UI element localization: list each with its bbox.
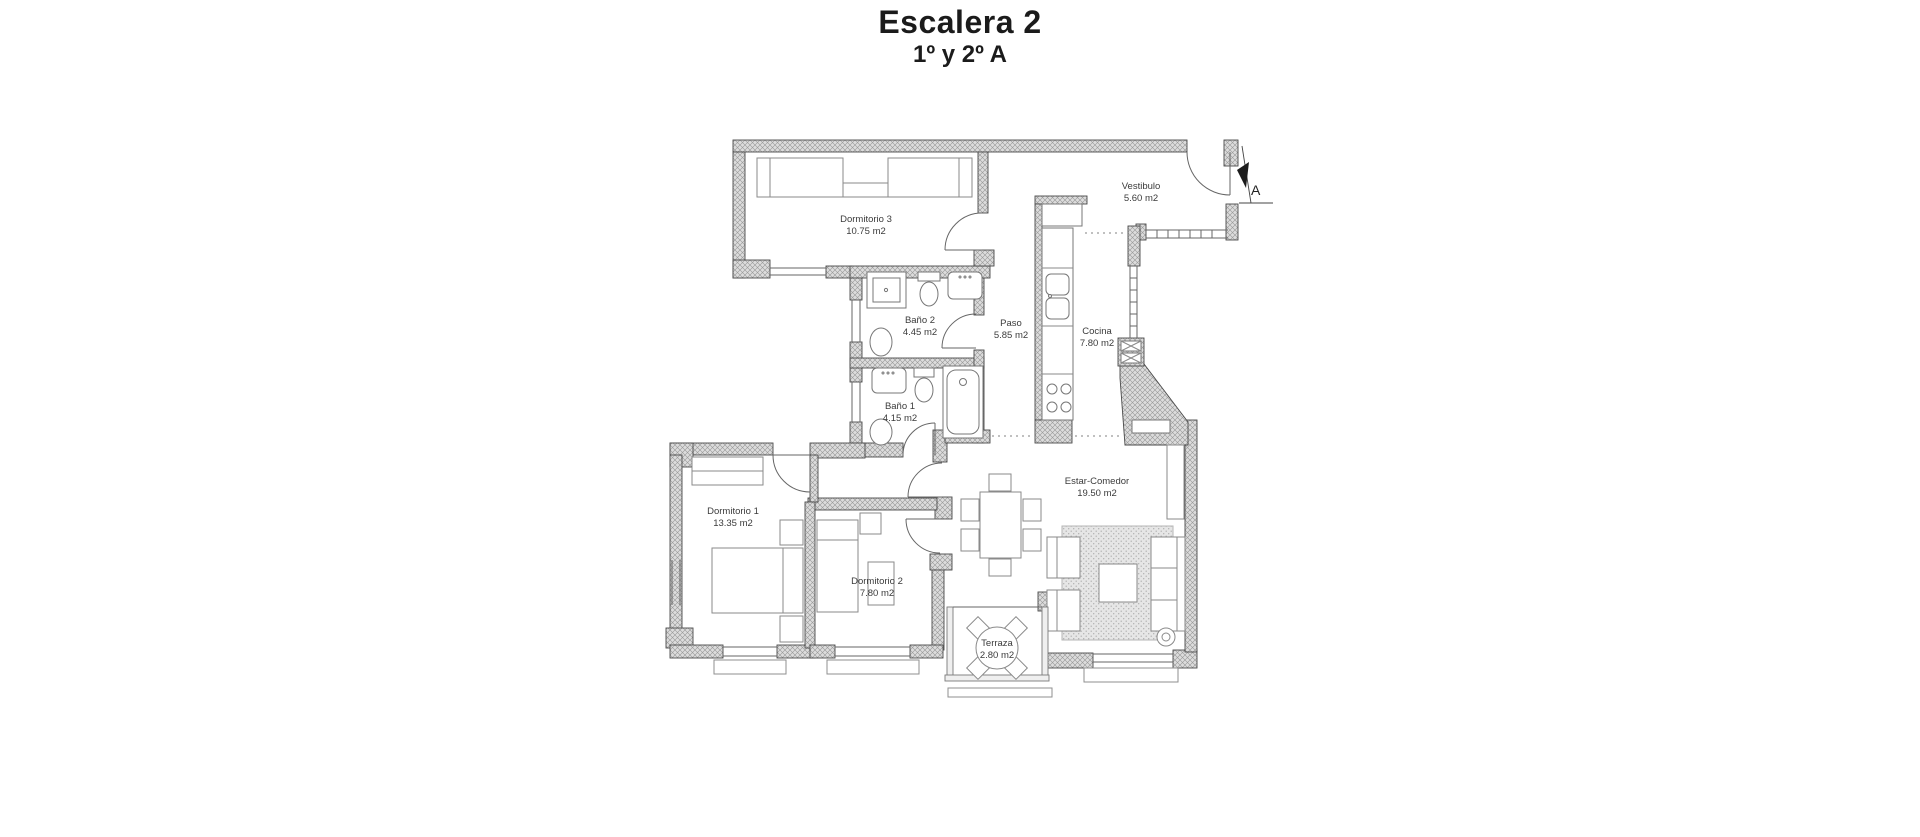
coffee-table [1099,564,1137,602]
label-estar-comedor: Estar-Comedor 19.50 m2 [1065,476,1129,499]
label-cocina: Cocina 7.80 m2 [1080,326,1114,349]
svg-text:13.35 m2: 13.35 m2 [713,518,753,529]
sideboard [1167,445,1184,519]
toilet-tank [918,272,940,281]
toilet [920,282,938,306]
bed-double [712,548,803,613]
nightstand [780,616,803,642]
washbasin [872,368,906,393]
svg-text:5.60 m2: 5.60 m2 [1124,193,1158,204]
label-dormitorio3: Dormitorio 3 10.75 m2 [840,214,892,237]
label-dormitorio2: Dormitorio 2 7.80 m2 [851,576,903,599]
window-cocina-glazed [1130,266,1137,338]
armchair [1047,537,1080,578]
svg-text:Terraza: Terraza [981,638,1013,649]
page-subtitle: 1º y 2º A [0,41,1920,70]
window-dormitorio3 [770,268,826,275]
sofa [1151,537,1185,631]
window-estar-top-right [1132,420,1170,433]
window-dormitorio1 [723,647,777,656]
door-bano2 [942,314,976,348]
toilet [915,378,933,402]
floor-plan-canvas: A Dormitorio 3 10.75 m2 Vestibulo 5.60 m… [630,100,1330,745]
door-dormitorio3 [945,213,982,250]
plant [1157,628,1175,646]
window-vestibulo-band [1146,230,1228,238]
kitchen-counter-top [1042,204,1082,226]
sill-terraza [948,688,1052,697]
sill-dormitorio2 [827,660,919,674]
bidet [870,328,892,356]
svg-text:Baño 1: Baño 1 [885,401,915,412]
kitchen-sink [1046,274,1069,295]
nightstand [860,513,881,534]
entrance-arrow-icon [1237,162,1249,188]
svg-text:7.80 m2: 7.80 m2 [860,588,894,599]
svg-text:7.80 m2: 7.80 m2 [1080,338,1114,349]
bed-single [817,520,858,612]
svg-text:Estar-Comedor: Estar-Comedor [1065,476,1129,487]
label-bano2: Baño 2 4.45 m2 [903,315,937,338]
sill-dormitorio1 [714,660,786,674]
svg-text:Dormitorio 1: Dormitorio 1 [707,506,759,517]
toilet-tank [914,368,934,377]
window-dormitorio2 [835,647,910,656]
svg-text:4.15 m2: 4.15 m2 [883,413,917,424]
entrance-letter: A [1251,182,1261,198]
plan-header: Escalera 2 1º y 2º A [0,4,1920,70]
label-dormitorio1: Dormitorio 1 13.35 m2 [707,506,759,529]
label-vestibulo: Vestibulo 5.60 m2 [1122,181,1161,204]
dormitorio1-furniture [692,457,803,642]
door-pasillo [908,463,942,497]
svg-text:Vestibulo: Vestibulo [1122,181,1161,192]
nightstand [843,183,888,197]
svg-text:19.50 m2: 19.50 m2 [1077,488,1117,499]
svg-text:Cocina: Cocina [1082,326,1112,337]
dormitorio3-furniture [757,158,972,197]
door-bano1 [903,423,935,455]
label-bano1: Baño 1 4.15 m2 [883,401,917,424]
sill-estar [1084,668,1178,682]
door-dormitorio1 [773,455,810,492]
door-dormitorio2 [906,519,940,553]
floor-plan: A Dormitorio 3 10.75 m2 Vestibulo 5.60 m… [630,100,1330,745]
svg-text:2.80 m2: 2.80 m2 [980,650,1014,661]
label-paso: Paso 5.85 m2 [994,318,1028,341]
armchair [1047,590,1080,631]
window-estar [1093,654,1173,662]
page-title: Escalera 2 [0,4,1920,41]
entrance-marker: A [1237,146,1273,203]
bano2-fixtures [867,272,982,356]
svg-text:Paso: Paso [1000,318,1022,329]
svg-text:Dormitorio 2: Dormitorio 2 [851,576,903,587]
dining-table [980,492,1021,558]
svg-text:10.75 m2: 10.75 m2 [846,226,886,237]
svg-text:5.85 m2: 5.85 m2 [994,330,1028,341]
svg-text:Baño 2: Baño 2 [905,315,935,326]
svg-text:4.45 m2: 4.45 m2 [903,327,937,338]
nightstand [780,520,803,545]
svg-text:Dormitorio 3: Dormitorio 3 [840,214,892,225]
label-terraza: Terraza 2.80 m2 [980,638,1014,661]
